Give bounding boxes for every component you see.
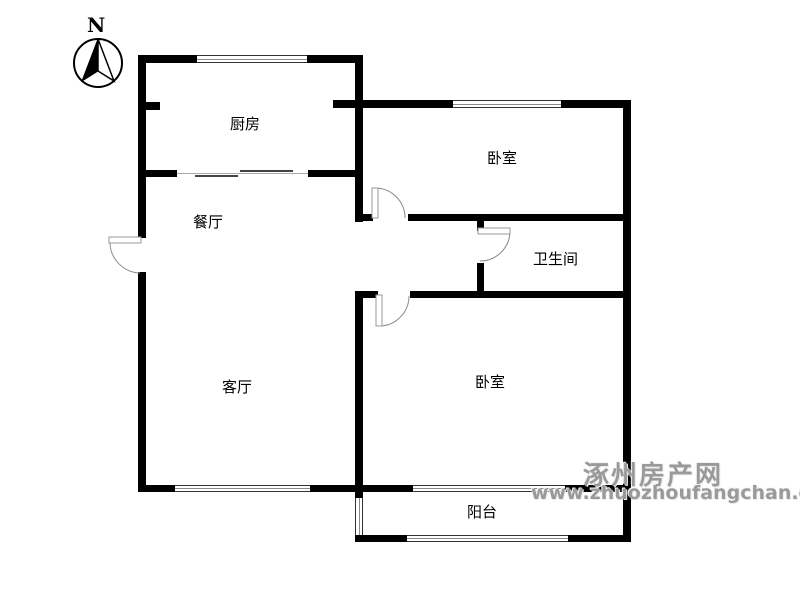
bedroom-bottom-door	[376, 295, 409, 326]
door-leaf	[376, 295, 382, 326]
north-label: N	[87, 13, 105, 37]
window-balcony-front	[407, 535, 568, 542]
wall-left-lower	[138, 272, 146, 492]
room-label-dining: 餐厅	[193, 211, 223, 232]
window-kitchen	[197, 55, 307, 63]
north-compass-icon	[74, 39, 122, 87]
window-bedroom-top	[453, 100, 561, 108]
sliding-door-kitchen	[177, 170, 308, 177]
vector-layer	[0, 0, 800, 600]
window-balcony-side	[355, 498, 363, 535]
entrance-door	[109, 237, 141, 273]
doorway-bathroom	[477, 231, 484, 263]
room-label-balcony: 阳台	[467, 501, 497, 522]
sliding-door-leaf	[195, 175, 238, 177]
window-living	[175, 485, 310, 492]
room-label-bedroom-bottom: 卧室	[475, 371, 505, 392]
room-label-bedroom-top: 卧室	[487, 147, 517, 168]
watermark-site-url: www.zhuozhoufangchan.com	[531, 482, 800, 504]
wall-left-upper	[138, 55, 146, 238]
room-label-bathroom: 卫生间	[533, 248, 578, 269]
floor-plan: N 厨房 餐厅 卧室 卫生间 客厅 卧室 阳台 涿州房产网 www.zhuozh…	[0, 0, 800, 600]
sliding-door-leaf	[240, 170, 293, 172]
wall-kitchen-right	[355, 57, 363, 222]
room-label-living: 客厅	[222, 376, 252, 397]
wall-stub-kitchen-left	[146, 102, 160, 110]
room-label-kitchen: 厨房	[230, 113, 260, 134]
doorway-bedroom-top	[373, 214, 408, 221]
door-leaf	[109, 237, 141, 243]
doorway-bedroom-bottom	[378, 291, 410, 298]
wall-living-right	[355, 291, 363, 498]
